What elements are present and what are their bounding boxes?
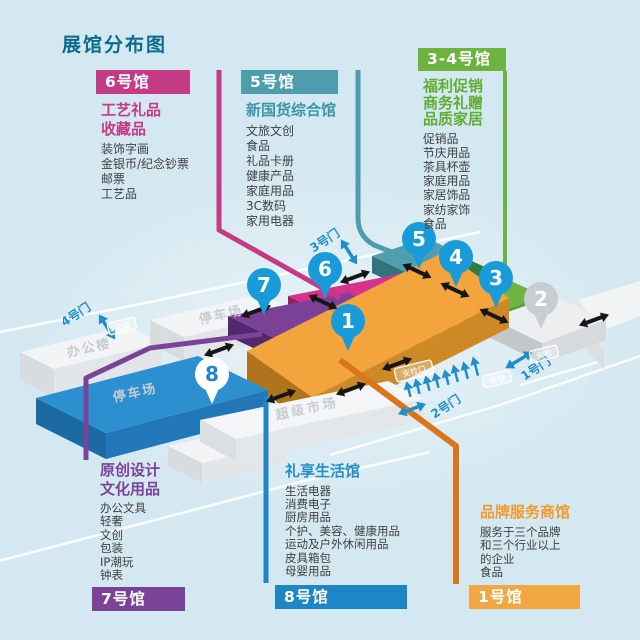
list-item: 金银币/纪念钞票 (101, 157, 224, 172)
svg-text:8: 8 (205, 362, 219, 386)
list-item: 钟表 (100, 569, 222, 582)
list-item: 家居饰品 (423, 188, 528, 202)
hall-6-category-title: 工艺礼品 收藏品 (96, 101, 224, 138)
list-item: 消费电子 (285, 498, 435, 511)
list-item: 家庭用品 (423, 174, 528, 188)
svg-text:3: 3 (489, 266, 503, 290)
hall-8-tag: 8号馆 (275, 585, 407, 609)
list-item: 3C数码 (246, 199, 361, 214)
list-item: 厨房用品 (285, 511, 435, 524)
svg-text:6: 6 (318, 257, 332, 281)
list-item: 邮票 (101, 172, 224, 187)
hall-3-4-category-title: 福利促销 商务礼赠 品质家居 (418, 78, 528, 128)
list-item: 家用电器 (246, 214, 361, 229)
svg-text:7: 7 (257, 273, 271, 297)
list-item: 食品 (246, 139, 361, 154)
list-item: 工艺品 (101, 187, 224, 202)
list-item: 包装 (100, 542, 222, 555)
list-item: 服务于三个品牌 (480, 526, 609, 540)
list-item: 办公文具 (100, 502, 222, 515)
svg-text:4: 4 (449, 245, 463, 269)
list-item: 文创 (100, 529, 222, 542)
legend-hall-3-4: 3-4号馆 福利促销 商务礼赠 品质家居 促销品 节庆用品 茶具杯壶 家庭用品 … (418, 48, 528, 231)
hall-1-category-title: 品牌服务商馆 (469, 503, 609, 522)
list-item: 促销品 (423, 132, 528, 146)
hall-7-tag: 7号馆 (92, 587, 185, 611)
list-item: 节庆用品 (423, 146, 528, 160)
list-item: 装饰字画 (101, 142, 224, 157)
hall-7-category-title: 原创设计 文化用品 (92, 461, 222, 498)
list-item: 食品 (423, 217, 528, 231)
list-item: IP潮玩 (100, 556, 222, 569)
hall-8-category-title: 礼享生活馆 (275, 462, 435, 481)
hall-5-tag: 5号馆 (241, 70, 338, 94)
legend-hall-6: 6号馆 工艺礼品 收藏品 装饰字画 金银币/纪念钞票 邮票 工艺品 (96, 70, 224, 202)
list-item: 和三个行业以上 (480, 539, 609, 553)
svg-text:1: 1 (341, 309, 355, 333)
svg-text:2: 2 (534, 287, 548, 311)
hall-5-item-list: 文旅文创 食品 礼品卡册 健康产品 家庭用品 3C数码 家用电器 (241, 124, 361, 229)
list-item: 健康产品 (246, 169, 361, 184)
list-item: 生活电器 (285, 485, 435, 498)
legend-hall-1: 品牌服务商馆 服务于三个品牌 和三个行业以上 的企业 食品 1号馆 (469, 503, 609, 609)
legend-hall-8: 礼享生活馆 生活电器 消费电子 厨房用品 个护、美容、健康用品 运动及户外休闲用… (275, 462, 435, 609)
hall-1-tag: 1号馆 (469, 585, 580, 609)
hall-5-category-title: 新国货综合馆 (241, 101, 361, 120)
list-item: 运动及户外休闲用品 (285, 538, 435, 551)
hall-6-item-list: 装饰字画 金银币/纪念钞票 邮票 工艺品 (96, 142, 224, 202)
hall-6-tag: 6号馆 (96, 70, 190, 94)
list-item: 家庭用品 (246, 184, 361, 199)
list-item: 礼品卡册 (246, 154, 361, 169)
list-item: 母婴用品 (285, 565, 435, 578)
hall-1-item-list: 服务于三个品牌 和三个行业以上 的企业 食品 (469, 526, 609, 580)
list-item: 皮具箱包 (285, 552, 435, 565)
legend-hall-7: 原创设计 文化用品 办公文具 轻奢 文创 包装 IP潮玩 钟表 7号馆 (92, 461, 222, 611)
list-item: 茶具杯壶 (423, 160, 528, 174)
hall-3-4-tag: 3-4号馆 (418, 48, 506, 71)
list-item: 文旅文创 (246, 124, 361, 139)
hall-3-4-item-list: 促销品 节庆用品 茶具杯壶 家庭用品 家居饰品 家纺家饰 食品 (418, 132, 528, 231)
list-item: 的企业 (480, 553, 609, 567)
hall-7-item-list: 办公文具 轻奢 文创 包装 IP潮玩 钟表 (92, 502, 222, 582)
list-item: 食品 (480, 566, 609, 580)
list-item: 个护、美容、健康用品 (285, 525, 435, 538)
hall-8-item-list: 生活电器 消费电子 厨房用品 个护、美容、健康用品 运动及户外休闲用品 皮具箱包… (275, 485, 435, 579)
legend-hall-5: 5号馆 新国货综合馆 文旅文创 食品 礼品卡册 健康产品 家庭用品 3C数码 家… (241, 70, 361, 229)
list-item: 轻奢 (100, 515, 222, 528)
list-item: 家纺家饰 (423, 203, 528, 217)
